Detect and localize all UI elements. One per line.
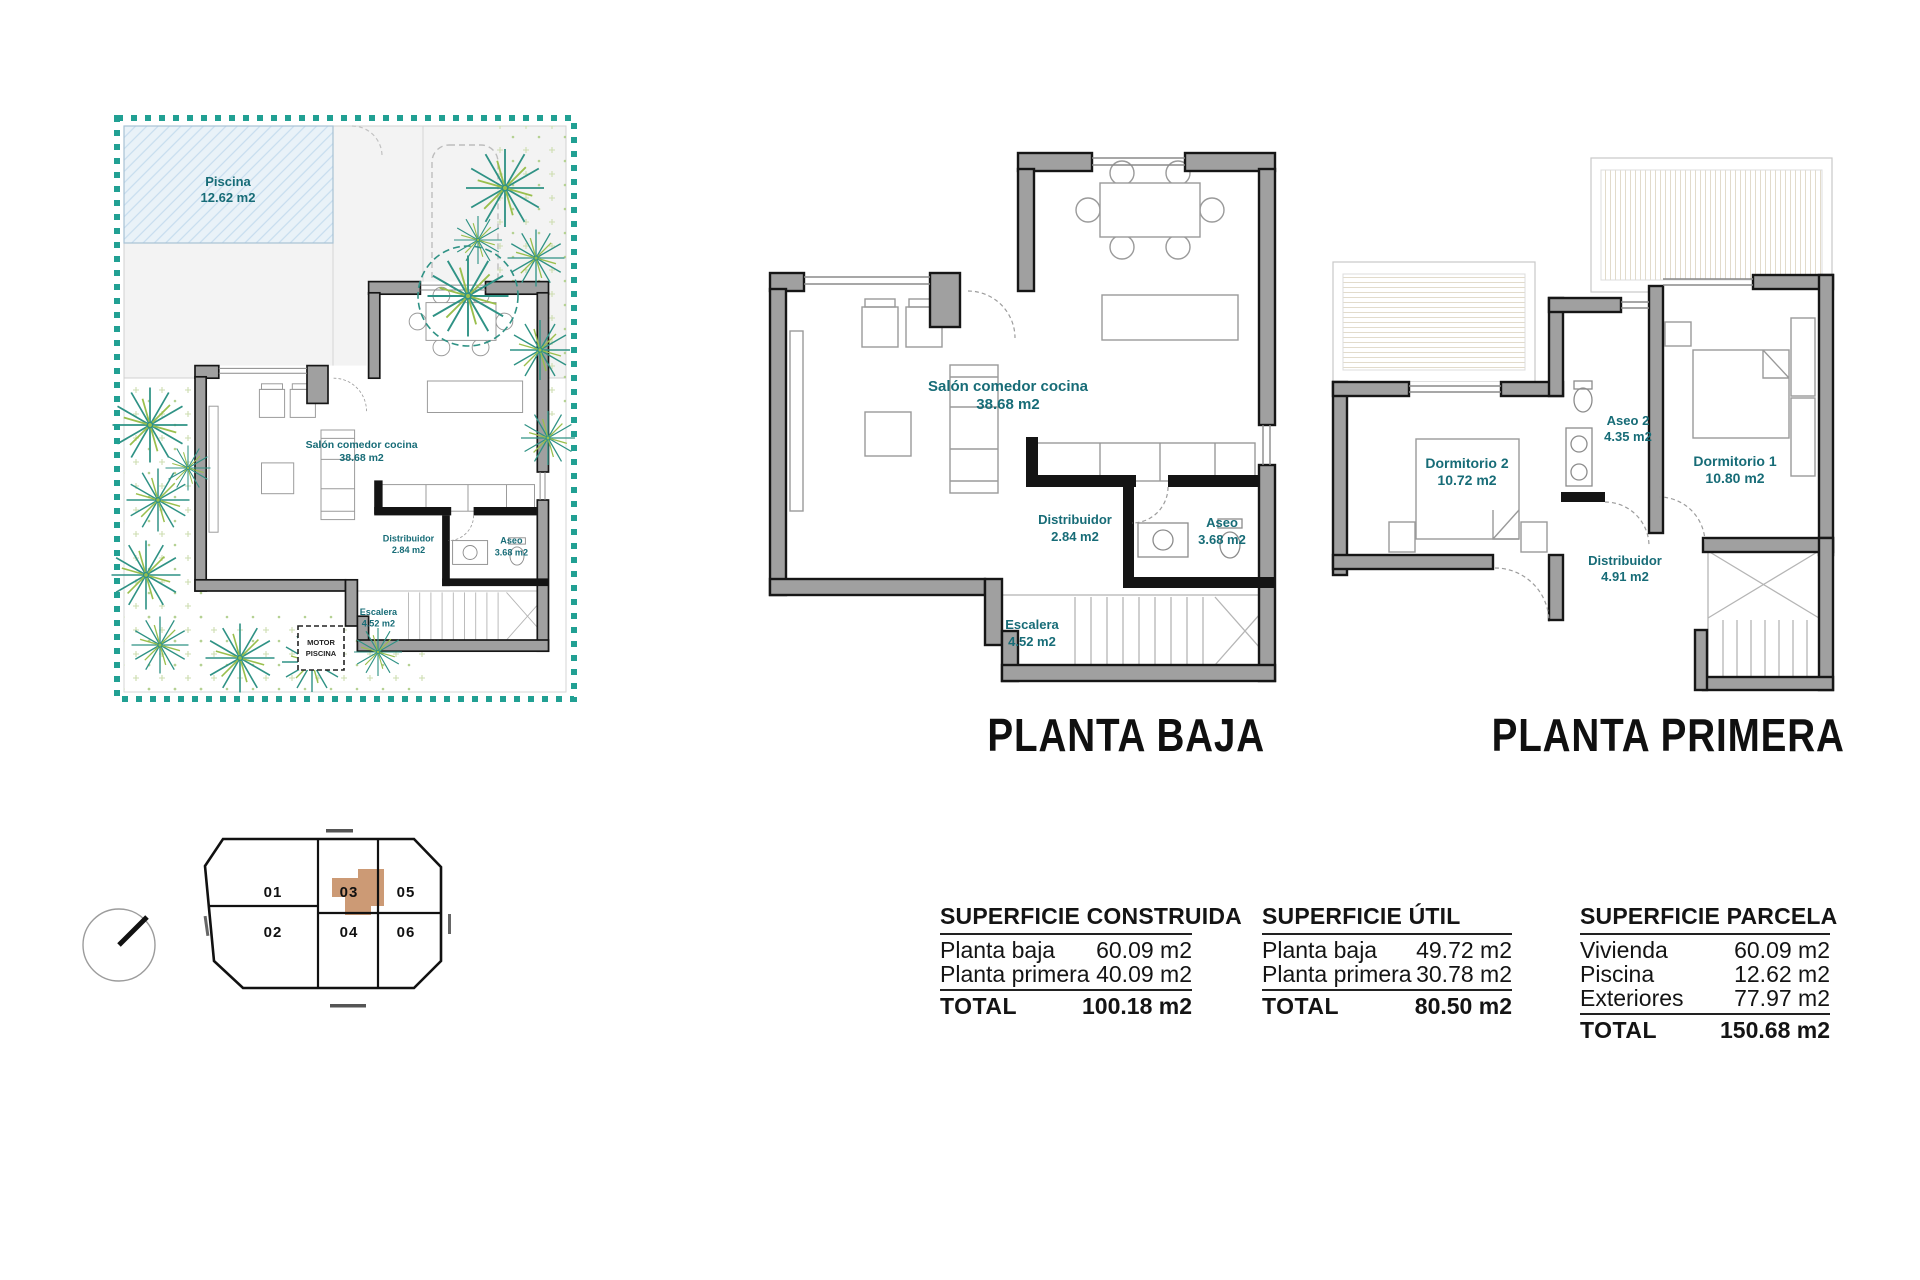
room-area-dormitorio1: 10.80 m2 bbox=[1705, 470, 1764, 486]
street-label-right bbox=[448, 914, 451, 934]
total-label: TOTAL bbox=[1262, 994, 1339, 1018]
table-superficie-construida: SUPERFICIE CONSTRUIDA Planta baja 60.09 … bbox=[940, 903, 1192, 1018]
pool-label: Piscina bbox=[205, 174, 251, 189]
table-title: SUPERFICIE ÚTIL bbox=[1262, 903, 1512, 935]
table-row: Exteriores 77.97 m2 bbox=[1580, 986, 1830, 1010]
planta-primera-title-text: PLANTA PRIMERA bbox=[1492, 708, 1845, 762]
plot-03: 03 bbox=[340, 884, 359, 901]
row-label: Exteriores bbox=[1580, 986, 1684, 1010]
site-plan: Piscina 12.62 m2 bbox=[112, 118, 576, 699]
table-row: Planta baja 49.72 m2 bbox=[1262, 938, 1512, 962]
pool-motor-box: MOTOR PISCINA bbox=[298, 626, 344, 670]
row-value: 40.09 m2 bbox=[1096, 962, 1192, 986]
row-label: Piscina bbox=[1580, 962, 1654, 986]
table-title: SUPERFICIE CONSTRUIDA bbox=[940, 903, 1192, 935]
total-value: 150.68 m2 bbox=[1720, 1018, 1830, 1042]
total-value: 100.18 m2 bbox=[1082, 994, 1192, 1018]
table-row: Planta primera 40.09 m2 bbox=[940, 962, 1192, 986]
plan-sheet: Salón comedor cocina 38.68 m2 Distribuid… bbox=[0, 0, 1920, 1280]
row-value: 77.97 m2 bbox=[1734, 986, 1830, 1010]
plot-04: 04 bbox=[340, 924, 359, 941]
row-label: Planta baja bbox=[940, 938, 1055, 962]
motor-label-2: PISCINA bbox=[306, 649, 337, 658]
plot-06: 06 bbox=[397, 924, 416, 941]
room-label-aseo2: Aseo 2 bbox=[1607, 413, 1650, 428]
room-label-dormitorio1: Dormitorio 1 bbox=[1693, 453, 1776, 469]
total-label: TOTAL bbox=[1580, 1018, 1657, 1042]
table-superficie-util: SUPERFICIE ÚTIL Planta baja 49.72 m2 Pla… bbox=[1262, 903, 1512, 1018]
planta-primera-title: PLANTA PRIMERA bbox=[1458, 708, 1858, 762]
row-label: Planta primera bbox=[1262, 962, 1412, 986]
table-row: Planta baja 60.09 m2 bbox=[940, 938, 1192, 962]
motor-label-1: MOTOR bbox=[307, 638, 335, 647]
street-label-top bbox=[326, 829, 353, 833]
pool-area-label: 12.62 m2 bbox=[201, 190, 256, 205]
row-value: 60.09 m2 bbox=[1096, 938, 1192, 962]
planta-baja-title: PLANTA BAJA bbox=[926, 708, 1326, 762]
room-area-distribuidor-p1: 4.91 m2 bbox=[1601, 569, 1649, 584]
site-key: 01 02 03 04 05 06 bbox=[83, 829, 451, 1008]
table-row: Planta primera 30.78 m2 bbox=[1262, 962, 1512, 986]
row-value: 49.72 m2 bbox=[1416, 938, 1512, 962]
table-row: Piscina 12.62 m2 bbox=[1580, 962, 1830, 986]
room-label-dormitorio2: Dormitorio 2 bbox=[1425, 455, 1508, 471]
total-label: TOTAL bbox=[940, 994, 1017, 1018]
room-area-aseo2: 4.35 m2 bbox=[1604, 429, 1652, 444]
street-label-bottom bbox=[330, 1004, 366, 1008]
compass-needle-icon bbox=[119, 917, 147, 945]
total-value: 80.50 m2 bbox=[1415, 994, 1512, 1018]
row-label: Planta baja bbox=[1262, 938, 1377, 962]
table-total-row: TOTAL 100.18 m2 bbox=[940, 989, 1192, 1018]
row-value: 30.78 m2 bbox=[1416, 962, 1512, 986]
plot-01: 01 bbox=[264, 884, 283, 901]
room-area-dormitorio2: 10.72 m2 bbox=[1437, 472, 1496, 488]
table-total-row: TOTAL 80.50 m2 bbox=[1262, 989, 1512, 1018]
drawing-canvas: Salón comedor cocina 38.68 m2 Distribuid… bbox=[0, 0, 1920, 1280]
row-value: 60.09 m2 bbox=[1734, 938, 1830, 962]
table-row: Vivienda 60.09 m2 bbox=[1580, 938, 1830, 962]
planta-baja-drawing bbox=[770, 153, 1275, 681]
planta-baja-title-text: PLANTA BAJA bbox=[987, 708, 1265, 762]
row-value: 12.62 m2 bbox=[1734, 962, 1830, 986]
street-label-left bbox=[204, 916, 210, 936]
plot-02: 02 bbox=[264, 924, 283, 941]
table-total-row: TOTAL 150.68 m2 bbox=[1580, 1013, 1830, 1042]
table-title: SUPERFICIE PARCELA bbox=[1580, 903, 1830, 935]
site-key-dividers bbox=[208, 839, 441, 988]
room-label-distribuidor-p1: Distribuidor bbox=[1588, 553, 1662, 568]
table-superficie-parcela: SUPERFICIE PARCELA Vivienda 60.09 m2 Pis… bbox=[1580, 903, 1830, 1042]
plot-05: 05 bbox=[397, 884, 416, 901]
planta-primera-drawing: Dormitorio 2 10.72 m2 Aseo 2 4.35 m2 Dor… bbox=[1333, 158, 1833, 690]
row-label: Planta primera bbox=[940, 962, 1090, 986]
row-label: Vivienda bbox=[1580, 938, 1668, 962]
